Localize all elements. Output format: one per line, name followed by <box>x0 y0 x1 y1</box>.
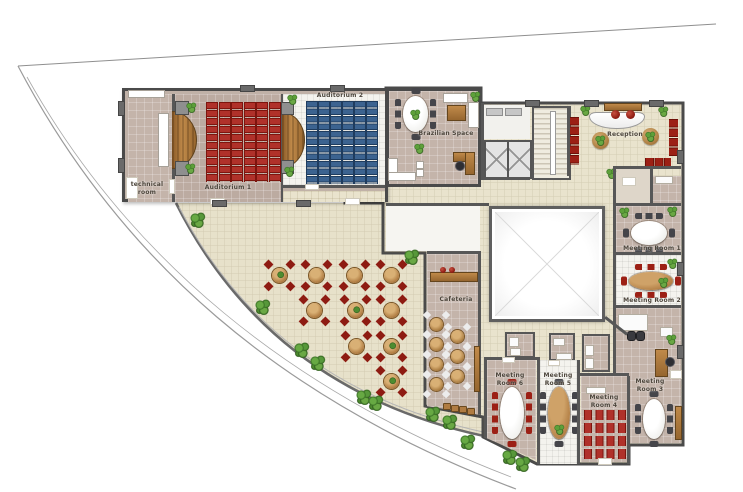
terrace-table <box>272 268 287 283</box>
seat-row <box>206 102 218 182</box>
chair-row <box>584 436 629 446</box>
chair-row <box>570 117 579 165</box>
column <box>649 100 664 107</box>
stool <box>416 169 424 177</box>
plant-icon <box>658 106 669 117</box>
chair <box>621 277 627 286</box>
cafe-table <box>430 338 443 351</box>
chair <box>650 391 659 397</box>
chair <box>669 229 675 238</box>
meeting-table <box>500 387 524 439</box>
utility-room <box>549 333 575 361</box>
chair <box>411 88 420 94</box>
service-room <box>386 206 480 251</box>
chair <box>555 379 564 385</box>
plant-icon <box>414 143 425 154</box>
door <box>169 179 175 194</box>
terrace-table <box>347 268 362 283</box>
utility-room <box>582 334 610 372</box>
floor-plan: technical room Auditorium 1 Auditorium 2… <box>0 0 743 492</box>
technical-counter <box>158 113 169 167</box>
terrace-table <box>348 303 363 318</box>
chair <box>411 134 420 140</box>
plant-icon <box>666 334 677 345</box>
chair-row <box>584 423 629 433</box>
mat <box>486 108 503 116</box>
chair-row <box>584 410 629 420</box>
cabinet <box>468 102 479 128</box>
door <box>126 177 138 199</box>
elevator-icon <box>507 140 532 179</box>
stool <box>443 403 451 410</box>
chair <box>626 110 635 119</box>
wall <box>579 373 629 376</box>
door <box>305 184 319 190</box>
wall-bench <box>474 346 480 392</box>
tree-icon <box>460 434 476 450</box>
chair <box>508 379 517 385</box>
tree-icon <box>190 212 206 228</box>
utility-room <box>505 332 535 358</box>
wall <box>615 305 681 308</box>
counter <box>388 172 416 181</box>
seat-row <box>342 101 354 184</box>
coffee-machine-icon <box>440 267 446 273</box>
staircase <box>532 106 571 180</box>
tree-icon <box>404 249 420 265</box>
plant-icon <box>185 163 196 174</box>
elevator-icon <box>484 140 509 179</box>
fixture <box>556 353 572 360</box>
stool <box>459 406 467 413</box>
wall <box>481 103 484 180</box>
plant-icon <box>667 206 678 217</box>
column <box>330 85 345 92</box>
chair <box>555 441 564 447</box>
property-line <box>18 24 716 66</box>
column <box>677 150 684 164</box>
wall <box>627 376 630 464</box>
seat-row <box>244 102 256 182</box>
coffee-table <box>642 128 659 145</box>
meeting-table <box>631 221 667 245</box>
wall <box>613 166 616 376</box>
door <box>622 177 636 186</box>
plant-icon <box>284 166 295 177</box>
terrace-table <box>384 374 399 389</box>
chair <box>611 110 620 119</box>
wall <box>386 203 489 206</box>
wall <box>613 166 681 169</box>
chair <box>675 277 681 286</box>
fixture <box>510 348 521 356</box>
column <box>677 262 684 276</box>
column <box>296 200 311 207</box>
cafe-table <box>451 370 464 383</box>
wall <box>537 357 540 464</box>
column <box>677 345 684 359</box>
meeting-table <box>643 399 665 439</box>
fixture <box>585 358 594 369</box>
plant-icon <box>410 109 421 120</box>
whiteboard <box>586 387 606 394</box>
credenza <box>675 406 682 440</box>
cafe-table <box>430 358 443 371</box>
column <box>212 200 227 207</box>
stool <box>451 405 459 412</box>
reception-sideboard <box>604 103 642 111</box>
plant-icon <box>554 424 565 435</box>
sideboard <box>443 93 468 103</box>
office-desk <box>465 152 475 175</box>
plant-icon <box>186 102 197 113</box>
terrace-table <box>384 339 399 354</box>
cafe-table <box>451 350 464 363</box>
seat-row <box>231 102 243 182</box>
plant-icon <box>470 91 481 102</box>
window <box>128 90 165 98</box>
terrace-table <box>384 268 399 283</box>
seat-row <box>306 101 318 184</box>
wall <box>613 203 681 206</box>
tree-icon <box>368 395 384 411</box>
cafeteria-counter <box>430 272 478 282</box>
seat-row <box>354 101 366 184</box>
door <box>548 360 560 366</box>
plant-icon <box>658 277 669 288</box>
chair <box>650 441 659 447</box>
office-chair <box>456 162 464 170</box>
column <box>118 101 125 116</box>
seat-row <box>256 102 268 182</box>
terrace-table <box>349 339 364 354</box>
column <box>240 85 255 92</box>
table <box>631 221 667 245</box>
table <box>500 387 524 439</box>
chair <box>508 441 517 447</box>
wall <box>650 169 653 204</box>
fixture <box>509 337 519 347</box>
stool <box>416 161 424 169</box>
restroom <box>616 169 650 204</box>
desk <box>447 105 466 121</box>
seat-row <box>330 101 342 184</box>
coffee-machine-icon <box>449 267 455 273</box>
column <box>525 100 540 107</box>
sink <box>655 176 673 184</box>
cafe-table <box>430 378 443 391</box>
terrace-table <box>309 268 324 283</box>
chair <box>628 332 635 340</box>
wall <box>615 252 681 255</box>
door <box>598 458 612 465</box>
tree-icon <box>294 342 310 358</box>
plant-icon <box>595 135 606 146</box>
stool <box>467 408 475 415</box>
plant-icon <box>645 131 656 142</box>
tree-icon <box>255 299 271 315</box>
seat-row <box>219 102 231 182</box>
wall <box>481 177 530 180</box>
chair <box>623 229 629 238</box>
tree-icon <box>425 406 441 422</box>
terrace-table <box>384 303 399 318</box>
office-chair <box>666 358 674 366</box>
plant-icon <box>287 94 298 105</box>
chair <box>637 332 644 340</box>
table <box>643 399 665 439</box>
column <box>118 158 125 173</box>
terrace-table <box>307 303 322 318</box>
door <box>670 370 682 379</box>
door <box>502 357 515 363</box>
seat-row <box>318 101 330 184</box>
mat <box>505 108 522 116</box>
fixture <box>553 338 565 346</box>
column <box>584 100 599 107</box>
coffee-table <box>592 132 609 149</box>
plant-icon <box>619 207 630 218</box>
cafe-table <box>430 318 443 331</box>
door <box>345 198 360 205</box>
fixture <box>585 345 594 356</box>
seat-row <box>366 101 378 184</box>
seat-row <box>269 102 281 182</box>
atrium-void <box>489 206 605 322</box>
cafe-table <box>451 330 464 343</box>
tree-icon <box>310 355 326 371</box>
tree-icon <box>442 414 458 430</box>
tree-icon <box>515 456 531 472</box>
